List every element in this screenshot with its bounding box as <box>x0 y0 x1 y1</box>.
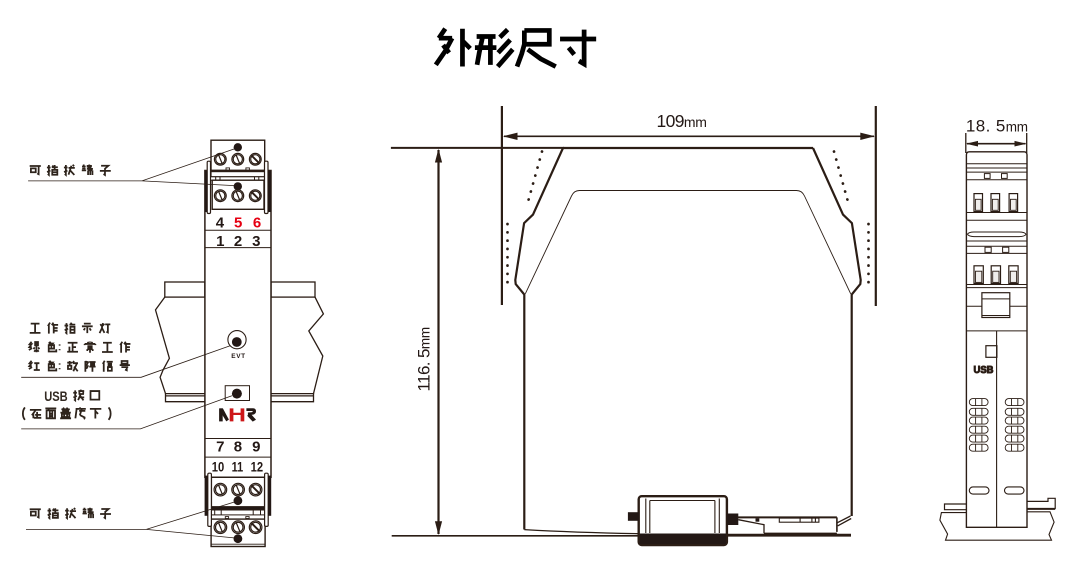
svg-text:3: 3 <box>252 233 260 250</box>
svg-text:5: 5 <box>234 214 242 231</box>
svg-text:18. 5mm: 18. 5mm <box>966 116 1028 135</box>
svg-text:109mm: 109mm <box>657 111 707 131</box>
svg-text:2: 2 <box>234 233 242 250</box>
svg-text:12: 12 <box>251 459 264 475</box>
svg-text:10: 10 <box>212 459 225 475</box>
svg-text:4: 4 <box>216 214 225 231</box>
svg-text:8: 8 <box>234 439 242 456</box>
svg-text:116. 5mm: 116. 5mm <box>415 327 434 391</box>
svg-text:6: 6 <box>253 214 261 231</box>
svg-text:11: 11 <box>232 459 244 475</box>
svg-text:USB: USB <box>44 389 68 404</box>
svg-text:EVT: EVT <box>231 353 245 360</box>
svg-text:9: 9 <box>252 439 260 456</box>
svg-text:7: 7 <box>216 439 224 456</box>
svg-text:USB: USB <box>974 364 994 376</box>
svg-text:1: 1 <box>216 233 224 250</box>
